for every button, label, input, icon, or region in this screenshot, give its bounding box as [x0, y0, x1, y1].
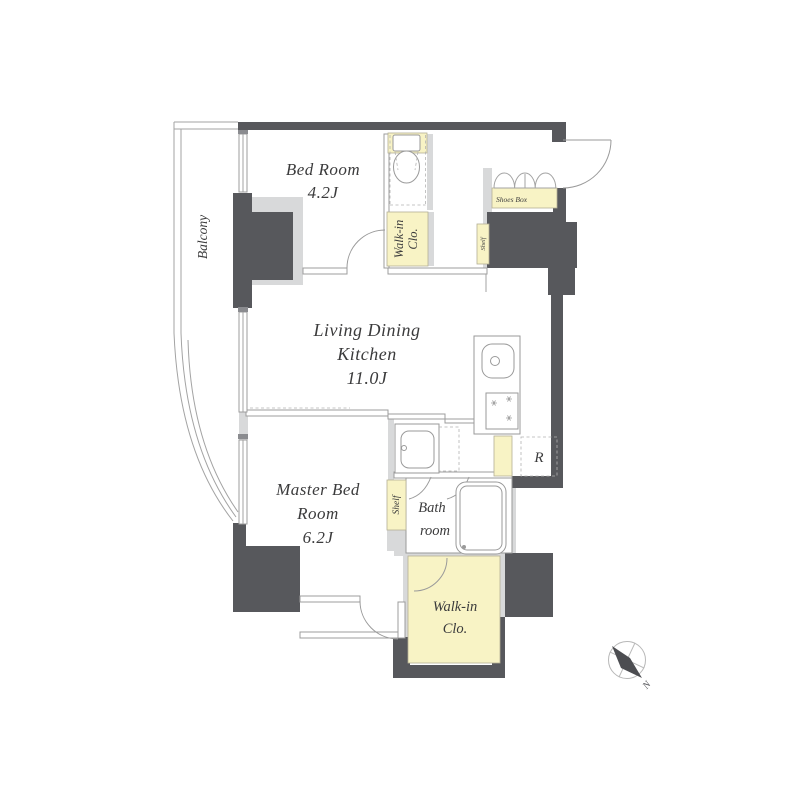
toilet-icon [390, 135, 426, 205]
entrance-closet-doors [494, 173, 556, 188]
balcony-outline [174, 122, 238, 521]
fridge-label: R [533, 450, 543, 466]
ldk-label-line2: Kitchen [336, 344, 397, 364]
compass-north-label: N [640, 678, 654, 692]
floor-plan: R Balcony Bed Room 4.2J Walk-in Clo. Sho… [0, 0, 800, 800]
master-label-line2: Room [296, 504, 339, 523]
faucet-icon [491, 357, 500, 366]
bedroom-door-arc [347, 230, 385, 268]
shoes-box-label: Shoes Box [496, 195, 528, 204]
walkin-closet-bottom-label-line1: Walk-in [433, 599, 478, 615]
bathtub-icon [456, 482, 506, 554]
bedroom-label-line2: 4.2J [308, 183, 340, 202]
washbasin-icon [395, 424, 459, 473]
shelf-entrance-label: Shelf [480, 236, 487, 250]
master-label-line3: 6.2J [303, 528, 335, 547]
compass-icon: N [602, 635, 655, 692]
entrance-door-arc [563, 140, 611, 188]
bath-label-line2: room [420, 523, 450, 539]
kitchen-counter-end [494, 436, 512, 476]
ldk-label-line3: 11.0J [347, 368, 388, 388]
floor-plan-page: R Balcony Bed Room 4.2J Walk-in Clo. Sho… [0, 0, 800, 800]
balcony-label: Balcony [195, 215, 210, 259]
compass-needle [612, 646, 642, 678]
stove-icon [486, 393, 518, 429]
bath-label-line1: Bath [418, 500, 445, 516]
ldk-label-line1: Living Dining [312, 320, 420, 340]
walkin-closet-bottom-label-line2: Clo. [443, 621, 468, 637]
kitchen-unit [474, 336, 520, 434]
master-label-line1: Master Bed [275, 480, 360, 499]
svg-text:Walk-in: Walk-in [392, 220, 406, 258]
bedroom-label-line1: Bed Room [286, 160, 360, 179]
svg-text:Clo.: Clo. [406, 228, 420, 249]
window-icons [238, 130, 248, 524]
shelf-master-label: Shelf [391, 494, 402, 514]
